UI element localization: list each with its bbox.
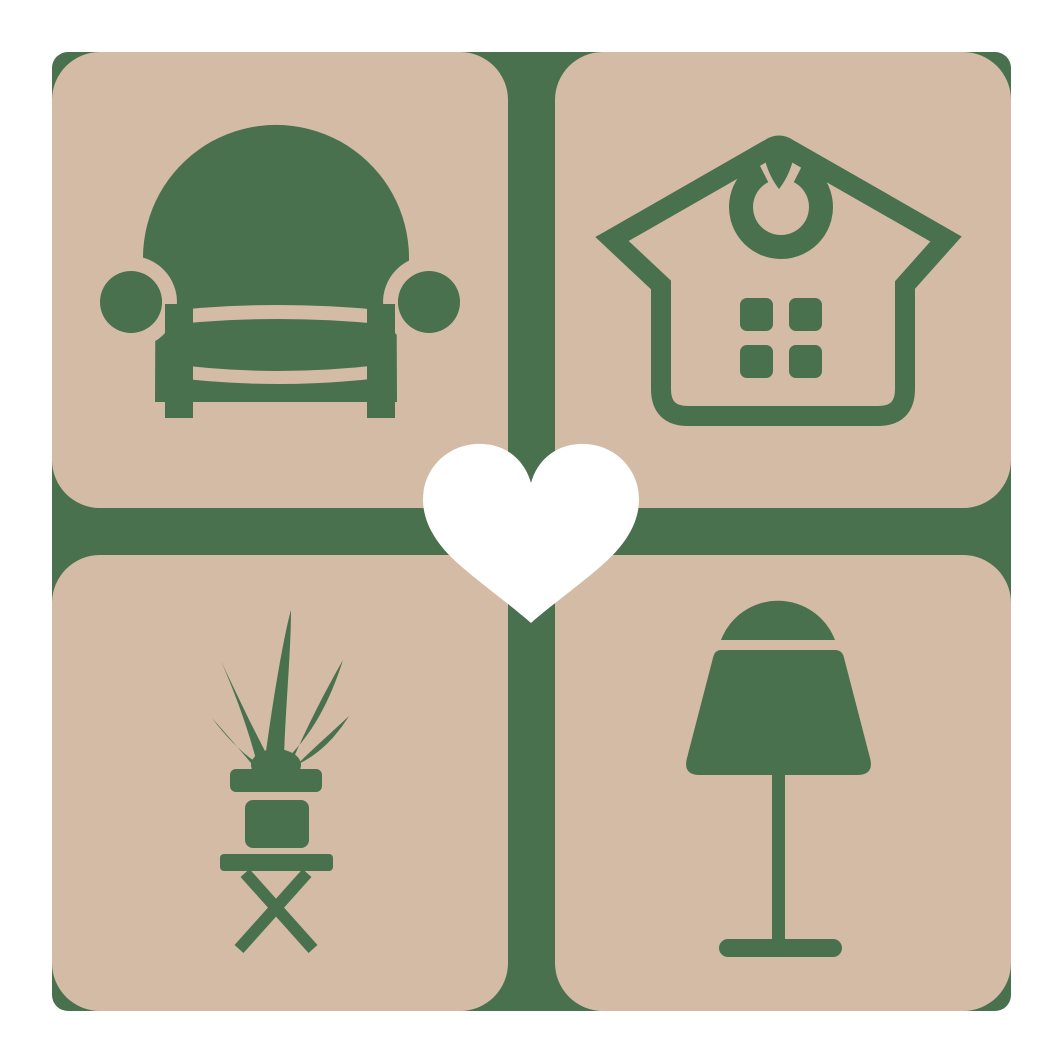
lamp-base bbox=[719, 939, 842, 957]
tile-top-right bbox=[555, 52, 1011, 508]
logo-art bbox=[0, 0, 1063, 1063]
logo-canvas bbox=[0, 0, 1063, 1063]
window-pane bbox=[789, 345, 822, 378]
armchair-right-armrest bbox=[398, 271, 460, 333]
armchair-seat-bottom-gap bbox=[167, 370, 393, 378]
stool-top bbox=[220, 854, 333, 871]
window-pane bbox=[789, 298, 822, 331]
armchair-front-rail bbox=[165, 386, 395, 402]
pot-body bbox=[245, 800, 309, 848]
pot-rim bbox=[230, 769, 322, 792]
window-pane bbox=[740, 298, 773, 331]
armchair-left-armrest bbox=[100, 271, 162, 333]
lamp-shade bbox=[686, 650, 871, 775]
window-pane bbox=[740, 345, 773, 378]
lamp-stem bbox=[772, 775, 785, 939]
